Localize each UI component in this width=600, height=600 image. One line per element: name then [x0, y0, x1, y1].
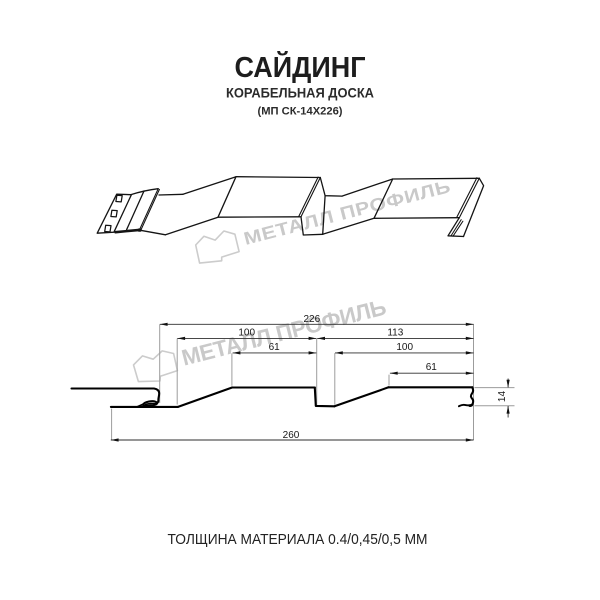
svg-text:260: 260 [283, 430, 300, 441]
svg-text:61: 61 [269, 342, 281, 353]
svg-text:САЙДИНГ: САЙДИНГ [235, 50, 366, 84]
svg-text:КОРАБЕЛЬНАЯ ДОСКА: КОРАБЕЛЬНАЯ ДОСКА [226, 85, 374, 100]
svg-text:100: 100 [396, 342, 413, 353]
svg-text:61: 61 [426, 362, 438, 373]
svg-text:14: 14 [497, 391, 508, 403]
svg-text:100: 100 [238, 328, 255, 339]
svg-text:113: 113 [387, 328, 403, 339]
svg-text:(МП СК-14Х226): (МП СК-14Х226) [258, 106, 343, 118]
svg-text:226: 226 [303, 314, 320, 325]
svg-text:ТОЛЩИНА МАТЕРИАЛА 0.4/0,45/0,5: ТОЛЩИНА МАТЕРИАЛА 0.4/0,45/0,5 ММ [168, 532, 428, 548]
